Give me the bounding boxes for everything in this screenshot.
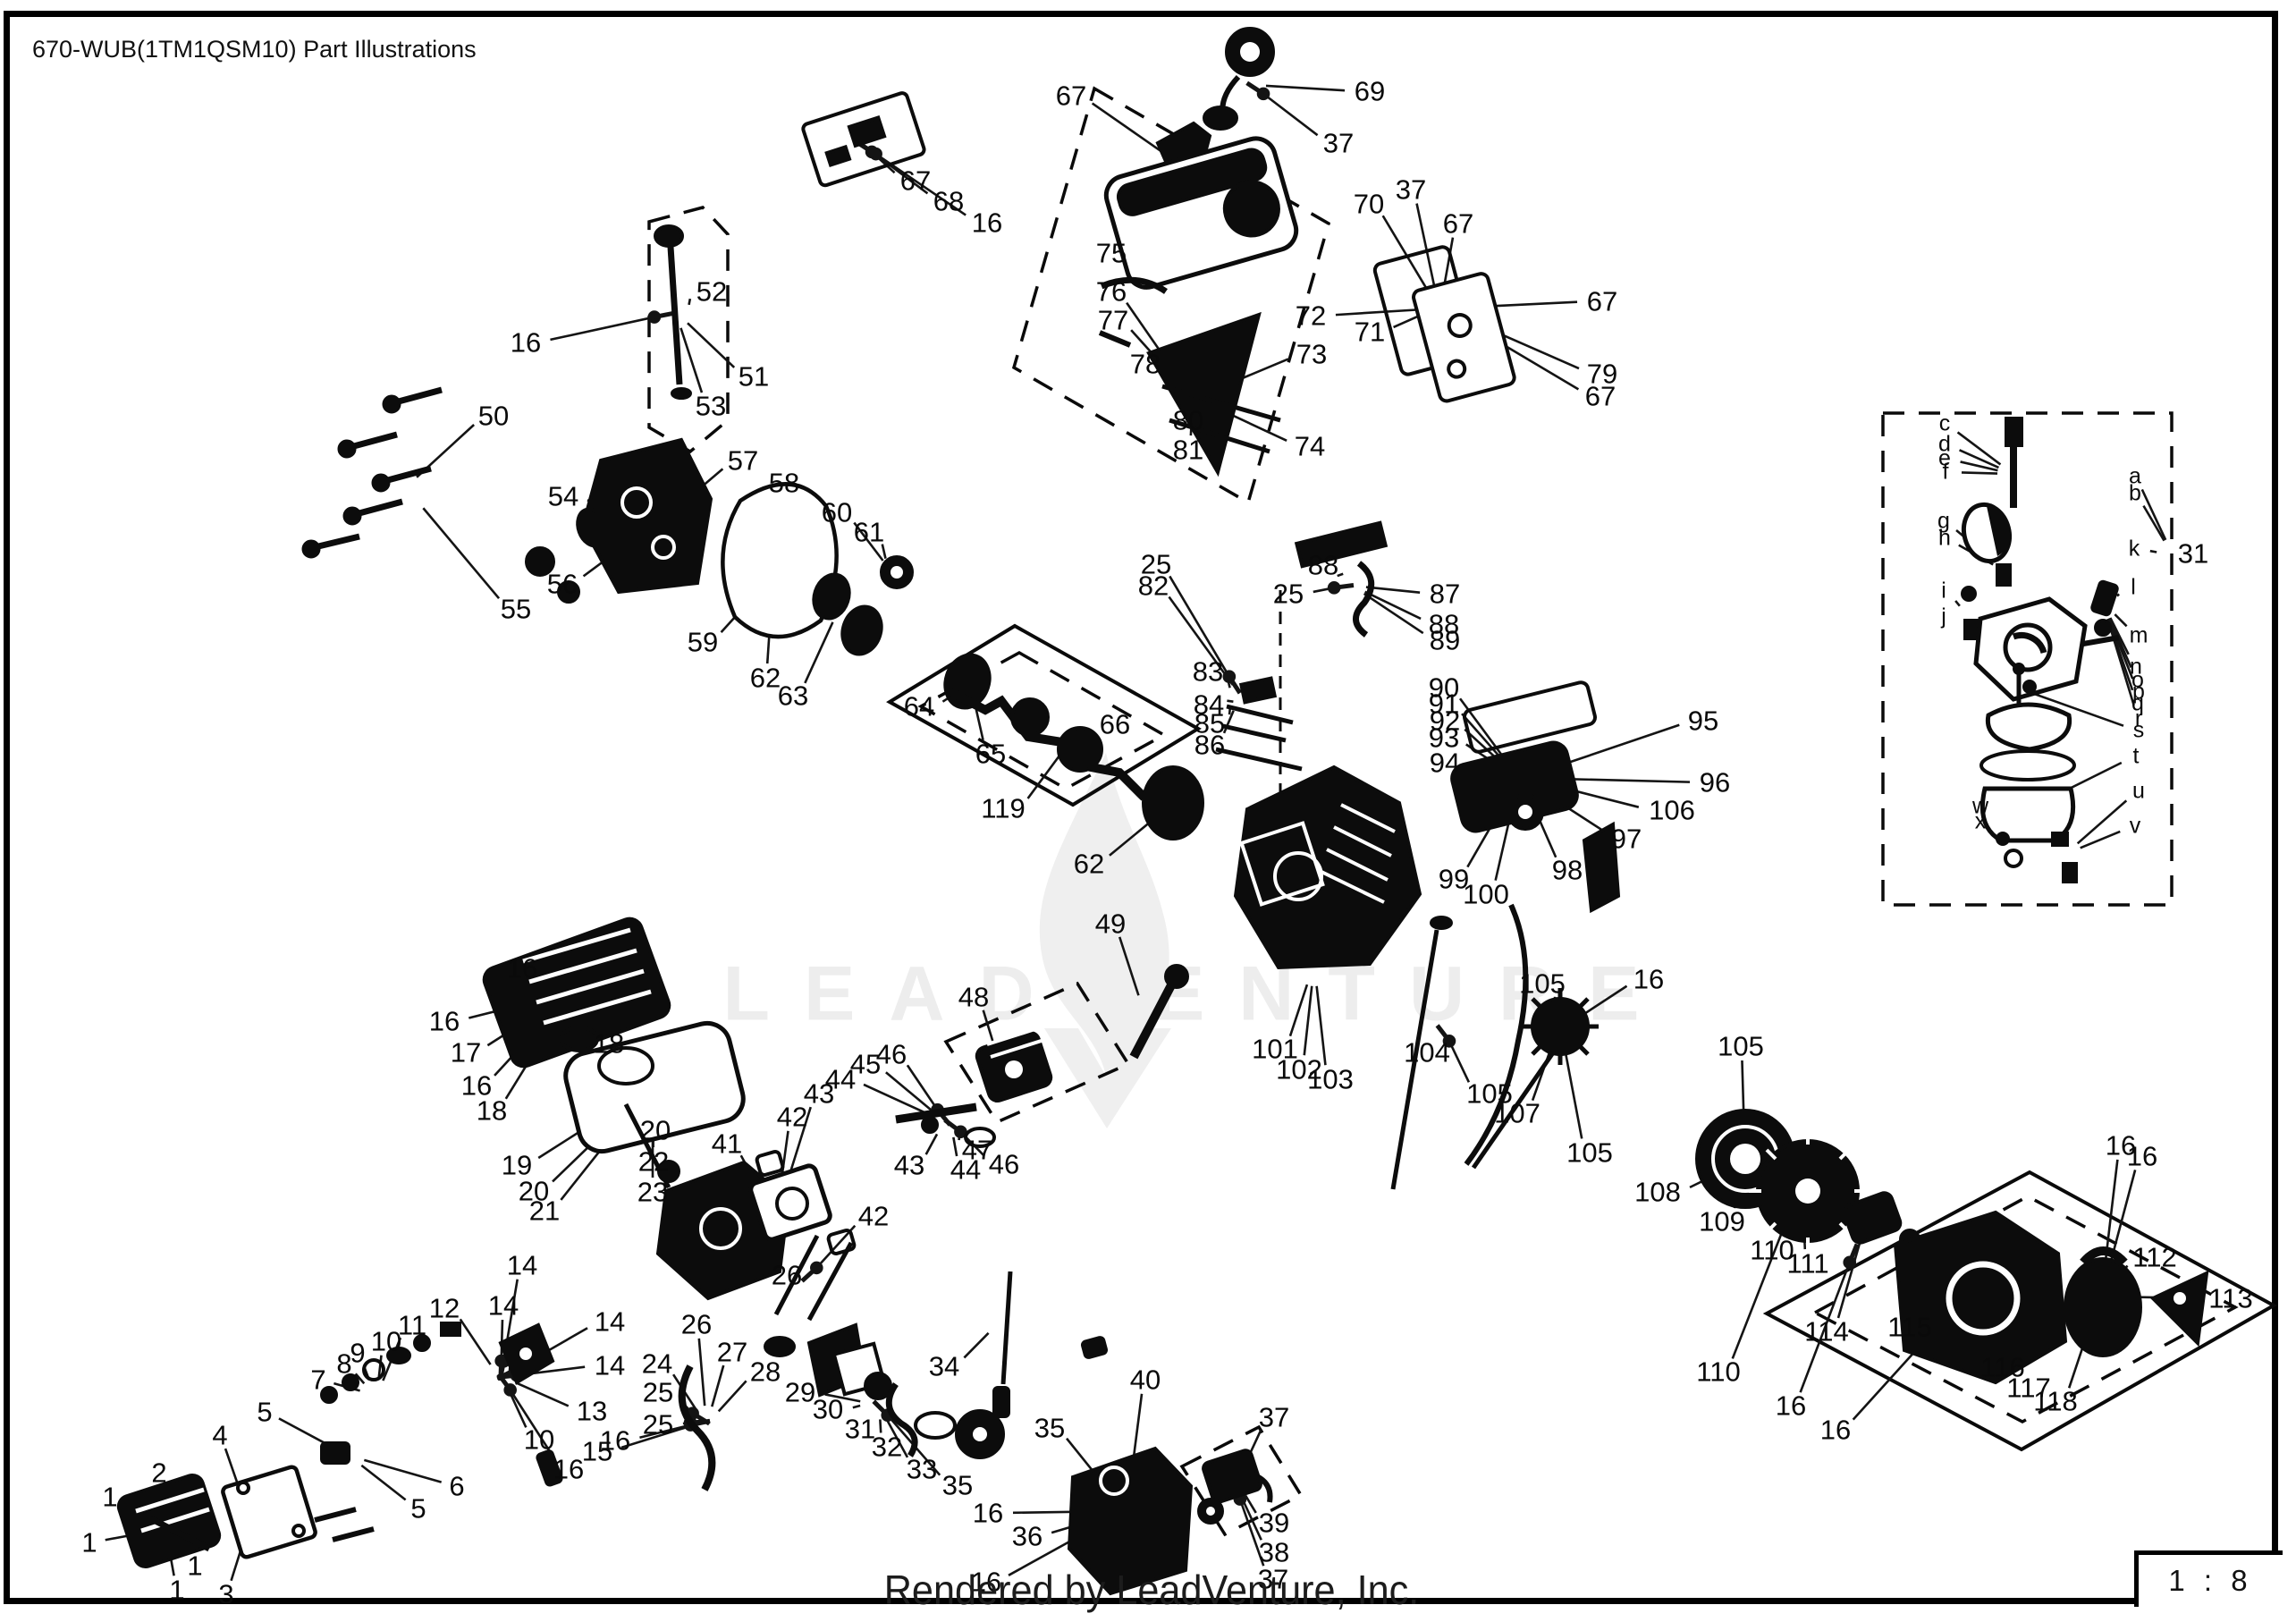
part-callout-14: 14 — [507, 1252, 537, 1280]
part-callout-1: 1 — [187, 1552, 202, 1580]
part-callout-25: 25 — [1273, 580, 1304, 608]
part-callout-16: 16 — [511, 329, 541, 357]
part-callout-63: 63 — [778, 682, 808, 710]
part-callout-35: 35 — [1034, 1415, 1065, 1442]
part-callout-65: 65 — [975, 740, 1006, 768]
part-callout-82: 82 — [1138, 572, 1169, 600]
part-callout-s: s — [2133, 720, 2145, 742]
part-callout-16: 16 — [2127, 1143, 2157, 1170]
part-callout-111: 111 — [1786, 1250, 1828, 1278]
part-callout-k: k — [2129, 538, 2140, 561]
part-callout-t: t — [2133, 746, 2140, 768]
part-callout-74: 74 — [1295, 433, 1325, 460]
part-callout-105: 105 — [1718, 1033, 1764, 1060]
part-callout-58: 58 — [769, 469, 799, 497]
part-callout-64: 64 — [904, 693, 934, 721]
part-callout-55: 55 — [501, 596, 531, 623]
part-callout-59: 59 — [688, 629, 718, 656]
part-callout-37: 37 — [1323, 130, 1354, 157]
part-callout-43: 43 — [894, 1152, 924, 1179]
part-callout-16: 16 — [1776, 1392, 1806, 1420]
part-callout-b: b — [2129, 483, 2141, 505]
part-callout-46: 46 — [876, 1041, 907, 1069]
part-callout-40: 40 — [1130, 1366, 1161, 1394]
part-callout-88: 88 — [1308, 552, 1338, 579]
part-callout-v: v — [2130, 815, 2141, 838]
part-callout-u: u — [2132, 781, 2145, 803]
part-callout-51: 51 — [739, 363, 769, 391]
part-callout-25: 25 — [643, 1411, 673, 1439]
part-callout-95: 95 — [1688, 707, 1718, 735]
part-callout-20: 20 — [640, 1117, 671, 1145]
part-callout-5: 5 — [410, 1495, 426, 1523]
part-callout-22: 22 — [638, 1148, 669, 1176]
part-callout-44: 44 — [950, 1156, 981, 1184]
part-callout-35: 35 — [942, 1472, 973, 1500]
part-callout-12: 12 — [429, 1295, 460, 1322]
part-callout-53: 53 — [696, 393, 726, 420]
part-callout-77: 77 — [1098, 307, 1128, 334]
part-callout-33: 33 — [907, 1456, 937, 1483]
part-callout-1: 1 — [102, 1483, 117, 1511]
part-callout-23: 23 — [637, 1178, 668, 1206]
part-callout-10: 10 — [371, 1328, 401, 1356]
part-callout-4: 4 — [212, 1422, 227, 1449]
part-callout-104: 104 — [1404, 1039, 1450, 1067]
part-callout-13: 13 — [577, 1398, 607, 1425]
part-callout-62: 62 — [750, 664, 781, 692]
part-callout-105: 105 — [1519, 970, 1566, 998]
part-callout-30: 30 — [813, 1396, 843, 1423]
part-callout-49: 49 — [1095, 910, 1126, 938]
part-callout-16: 16 — [973, 1500, 1003, 1527]
part-callout-50: 50 — [478, 402, 509, 430]
part-callout-67: 67 — [1443, 210, 1473, 238]
part-callout-16: 16 — [972, 209, 1002, 237]
part-callout-75: 75 — [1096, 240, 1127, 267]
part-callout-72: 72 — [1296, 302, 1326, 330]
part-callout-14: 14 — [595, 1352, 625, 1380]
part-callout-80: 80 — [1173, 407, 1203, 435]
part-callout-86: 86 — [1194, 731, 1225, 759]
part-callout-16: 16 — [429, 1008, 460, 1035]
part-callout-16: 16 — [553, 1456, 584, 1483]
part-callout-67: 67 — [1056, 82, 1086, 110]
part-callout-1: 1 — [81, 1529, 97, 1557]
part-callout-17: 17 — [451, 1039, 481, 1067]
part-callout-68: 68 — [933, 188, 964, 215]
scale-label: 1 : 8 — [2168, 1564, 2252, 1598]
part-callout-9: 9 — [350, 1339, 365, 1367]
part-callout-11: 11 — [398, 1312, 426, 1339]
part-callout-76: 76 — [1096, 278, 1127, 306]
part-callout-8: 8 — [336, 1350, 351, 1378]
part-callout-106: 106 — [1649, 797, 1695, 824]
part-callout-41: 41 — [712, 1130, 742, 1158]
part-callout-69: 69 — [1355, 78, 1385, 106]
part-callout-81: 81 — [1173, 436, 1203, 464]
part-callout-62: 62 — [1074, 850, 1104, 878]
part-callout-10: 10 — [524, 1426, 554, 1454]
part-callout-16: 16 — [1820, 1416, 1851, 1444]
part-callout-108: 108 — [1634, 1178, 1681, 1206]
part-callout-j: j — [1941, 606, 1946, 629]
callout-labels: 6767681669373770676779677576777872717374… — [0, 0, 2296, 1622]
part-callout-39: 39 — [1259, 1509, 1289, 1537]
part-callout-16: 16 — [507, 955, 537, 983]
part-callout-h: h — [1938, 528, 1951, 550]
part-callout-60: 60 — [822, 499, 852, 527]
part-callout-28: 28 — [750, 1358, 781, 1386]
part-callout-83: 83 — [1193, 658, 1223, 686]
part-callout-107: 107 — [1494, 1100, 1541, 1128]
render-credit: Rendered by LeadVenture, Inc. — [884, 1566, 1420, 1614]
part-callout-25: 25 — [643, 1379, 673, 1407]
part-callout-56: 56 — [547, 570, 578, 598]
part-callout-46: 46 — [989, 1151, 1019, 1178]
part-callout-21: 21 — [529, 1197, 560, 1225]
part-callout-6: 6 — [449, 1473, 464, 1500]
part-callout-l: l — [2131, 577, 2136, 599]
part-callout-34: 34 — [929, 1353, 959, 1381]
part-callout-5: 5 — [257, 1398, 272, 1426]
part-callout-m: m — [2130, 625, 2148, 647]
part-callout-i: i — [1941, 580, 1946, 603]
scale-box: 1 : 8 — [2134, 1550, 2283, 1607]
part-callout-2: 2 — [151, 1459, 166, 1487]
part-callout-7: 7 — [310, 1366, 325, 1394]
part-callout-113: 113 — [2208, 1285, 2252, 1313]
part-callout-103: 103 — [1307, 1066, 1354, 1094]
part-callout-16: 16 — [1633, 966, 1664, 993]
part-callout-1: 1 — [169, 1576, 184, 1604]
part-callout-105: 105 — [1566, 1139, 1613, 1167]
part-callout-66: 66 — [1100, 711, 1130, 739]
part-callout-52: 52 — [696, 278, 727, 306]
part-callout-97: 97 — [1611, 825, 1642, 853]
part-callout-100: 100 — [1463, 881, 1509, 908]
part-callout-67: 67 — [900, 167, 931, 195]
part-callout-118: 118 — [2033, 1388, 2077, 1415]
part-callout-42: 42 — [858, 1203, 889, 1230]
part-callout-37: 37 — [1396, 176, 1426, 204]
part-callout-32: 32 — [872, 1433, 902, 1461]
part-callout-14: 14 — [595, 1308, 625, 1336]
part-callout-29: 29 — [785, 1379, 815, 1407]
part-callout-37: 37 — [1259, 1404, 1289, 1432]
part-callout-18: 18 — [477, 1097, 507, 1125]
part-callout-38: 38 — [1259, 1539, 1289, 1567]
part-callout-31: 31 — [2178, 540, 2208, 568]
part-callout-71: 71 — [1355, 318, 1385, 346]
part-callout-78: 78 — [1130, 351, 1161, 378]
part-callout-26: 26 — [681, 1311, 712, 1339]
part-callout-115: 115 — [1887, 1314, 1931, 1341]
part-callout-48: 48 — [958, 984, 989, 1011]
parts-diagram-page: 670-WUB(1TM1QSM10) Part Illustrations LE… — [0, 0, 2296, 1622]
part-callout-3: 3 — [218, 1581, 233, 1609]
part-callout-98: 98 — [1552, 857, 1583, 884]
part-callout-x: x — [1975, 811, 1987, 833]
part-callout-94: 94 — [1430, 749, 1460, 777]
part-callout-26: 26 — [772, 1262, 802, 1289]
part-callout-119: 119 — [981, 795, 1025, 823]
part-callout-73: 73 — [1296, 341, 1327, 368]
part-callout-61: 61 — [854, 519, 884, 546]
part-callout-27: 27 — [717, 1339, 747, 1366]
part-callout-f: f — [1943, 461, 1949, 484]
part-callout-110: 110 — [1696, 1358, 1740, 1386]
part-callout-112: 112 — [2132, 1244, 2176, 1271]
part-callout-109: 109 — [1699, 1208, 1745, 1236]
part-callout-14: 14 — [488, 1292, 519, 1320]
part-callout-54: 54 — [548, 483, 578, 511]
part-callout-18: 18 — [594, 1030, 624, 1058]
part-callout-67: 67 — [1585, 383, 1616, 410]
part-callout-96: 96 — [1700, 769, 1730, 797]
part-callout-36: 36 — [1012, 1523, 1042, 1550]
part-callout-89: 89 — [1430, 627, 1460, 655]
part-callout-87: 87 — [1430, 580, 1460, 608]
part-callout-57: 57 — [728, 447, 758, 475]
part-callout-70: 70 — [1354, 190, 1384, 218]
part-callout-67: 67 — [1587, 288, 1617, 316]
part-callout-24: 24 — [642, 1350, 672, 1378]
part-callout-114: 114 — [1804, 1318, 1848, 1346]
part-callout-15: 15 — [582, 1438, 612, 1466]
